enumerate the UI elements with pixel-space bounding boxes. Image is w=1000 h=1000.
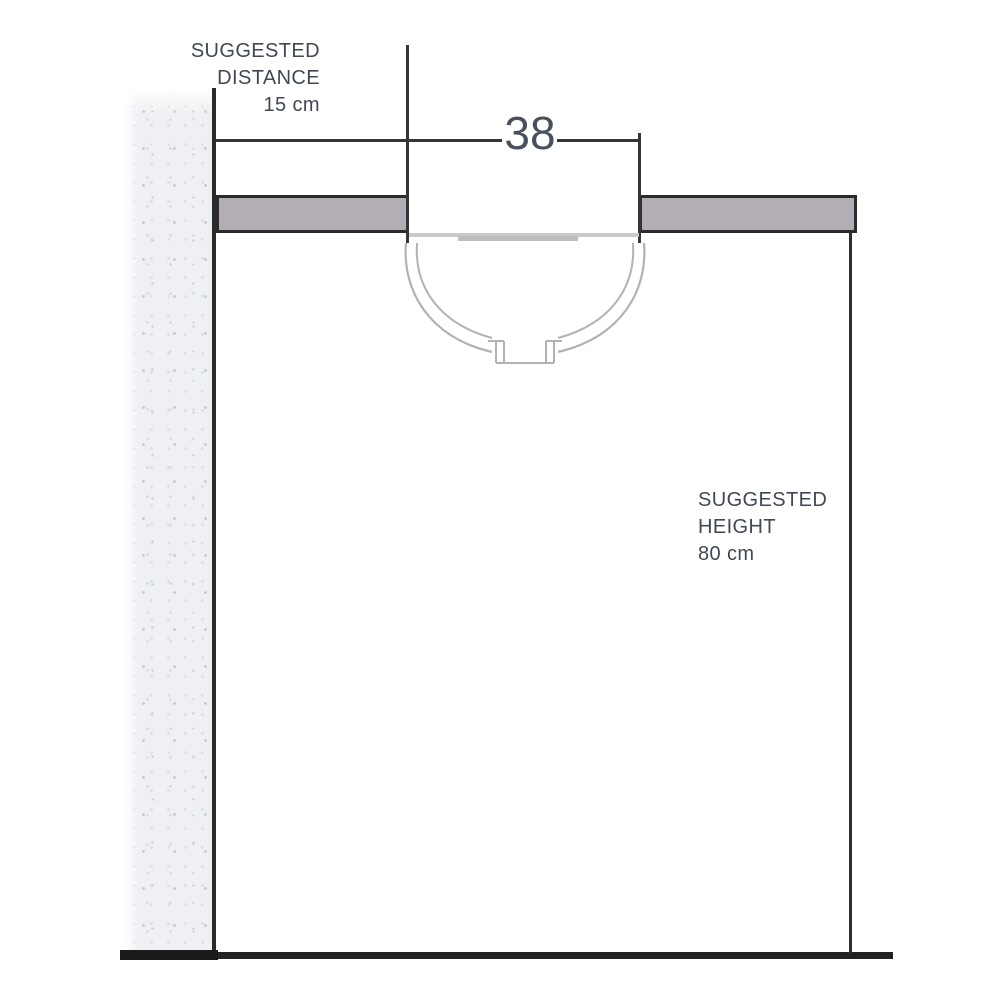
width-dimension-line-left <box>216 139 502 142</box>
basin-rim-band-center <box>458 236 578 241</box>
floor-line <box>120 952 893 959</box>
suggested-height-word1: SUGGESTED <box>698 487 908 514</box>
floor-line-under-wall <box>120 950 218 960</box>
basin-left-extension-line <box>406 45 409 243</box>
installation-diagram: SUGGESTED DISTANCE 15 cm 38 SUGGESTED HE… <box>0 0 1000 1000</box>
countertop-left <box>216 195 409 233</box>
basin-width-value: 38 <box>492 110 568 156</box>
suggested-distance-value: 15 cm <box>110 92 320 119</box>
width-dimension-line-right <box>557 139 641 142</box>
basin-right-extension-line <box>638 133 641 243</box>
height-dimension-line <box>849 233 852 954</box>
suggested-height-value: 80 cm <box>698 541 908 568</box>
wall-hatch <box>125 88 213 954</box>
suggested-height-label: SUGGESTED HEIGHT 80 cm <box>698 487 908 568</box>
basin-inner-contour <box>417 243 633 341</box>
washbasin-drawing <box>390 228 660 378</box>
suggested-distance-word2: DISTANCE <box>110 65 320 92</box>
suggested-distance-word1: SUGGESTED <box>110 38 320 65</box>
countertop-right <box>639 195 857 233</box>
suggested-distance-label: SUGGESTED DISTANCE 15 cm <box>110 38 320 119</box>
suggested-height-word2: HEIGHT <box>698 514 908 541</box>
